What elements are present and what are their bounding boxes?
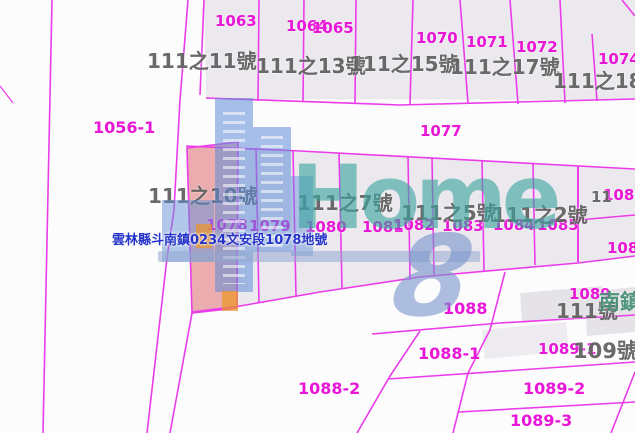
parcel-label-1087: 1087 <box>607 241 635 256</box>
address-label-111-10: 111之10號 <box>148 186 258 206</box>
parcel-label-1088: 1088 <box>443 301 488 317</box>
parcel-label-1072: 1072 <box>516 40 558 55</box>
address-label-111-2: 111之2號 <box>492 205 588 225</box>
parcel-label-1088-1: 1088-1 <box>418 346 480 362</box>
address-label-111-17: 111之17號 <box>450 57 560 77</box>
parcel-label-1056-1: 1056-1 <box>93 120 155 136</box>
parcel-label-1065: 1065 <box>312 21 354 36</box>
address-label-111-7: 111之7號 <box>297 193 393 213</box>
selected-parcel-info-label[interactable]: 雲林縣斗南鎮0234文安段1078地號 <box>112 229 327 248</box>
parcel-label-1063: 1063 <box>215 14 257 29</box>
address-label-fragment: 11 <box>591 190 612 205</box>
parcel-label-1077: 1077 <box>420 124 462 139</box>
parcel-label-1070: 1070 <box>416 31 458 46</box>
address-label-111-18: 111之18號 <box>553 71 635 91</box>
map-canvas[interactable]: 1063 1064 1065 1070 1071 1072 1074 1077 … <box>0 0 635 433</box>
address-label-111-5: 111之5號 <box>401 203 497 223</box>
address-label-111-11: 111之11號 <box>147 51 257 71</box>
parcel-label-1071: 1071 <box>466 35 508 50</box>
road-name-label: 南鎮 <box>599 292 635 313</box>
address-label-109: 109號 <box>573 341 635 362</box>
parcel-label-1089-2: 1089-2 <box>523 381 585 397</box>
address-label-111-15: 111之15號 <box>349 54 459 74</box>
parcel-label-1088-2: 1088-2 <box>298 381 360 397</box>
parcel-label-1074: 1074 <box>598 52 635 67</box>
parcel-label-1089-3: 1089-3 <box>510 413 572 429</box>
